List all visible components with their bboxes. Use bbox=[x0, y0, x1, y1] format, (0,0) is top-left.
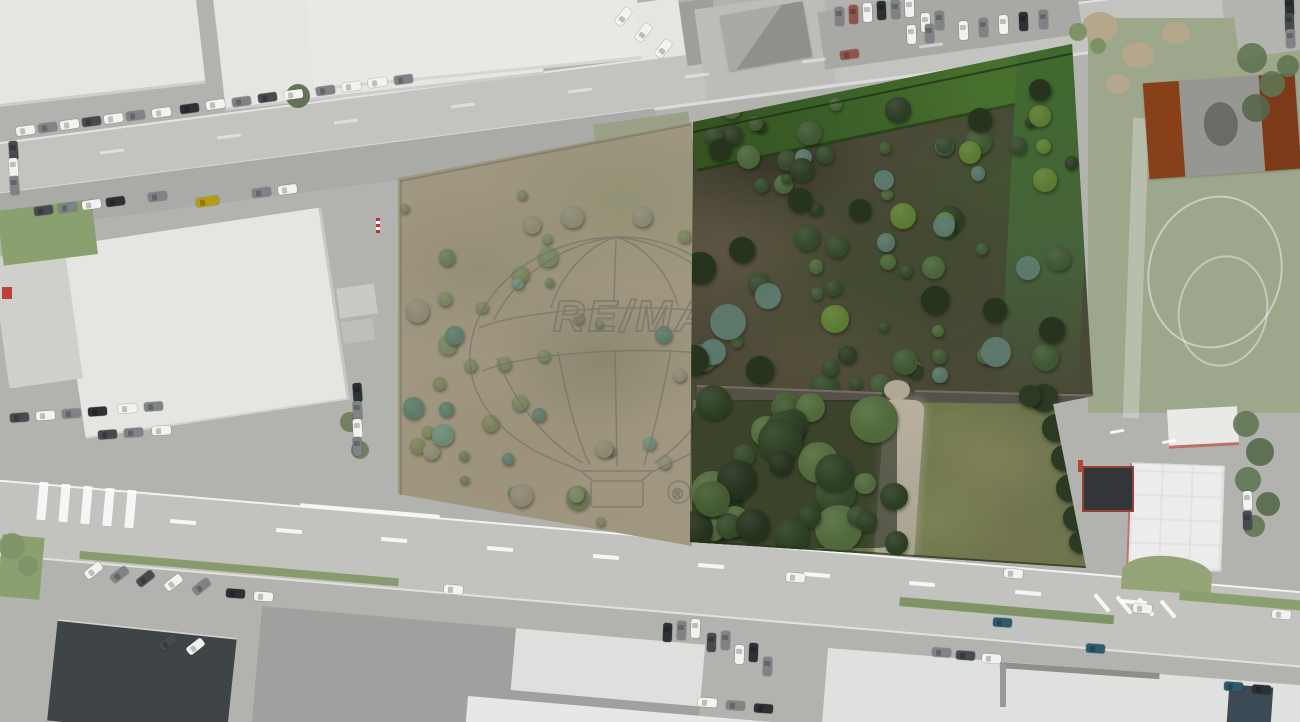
tree bbox=[1019, 385, 1041, 407]
watermark-registered-icon: ® bbox=[672, 486, 683, 503]
aerial-photo: RE/MAX ® bbox=[0, 0, 1300, 722]
